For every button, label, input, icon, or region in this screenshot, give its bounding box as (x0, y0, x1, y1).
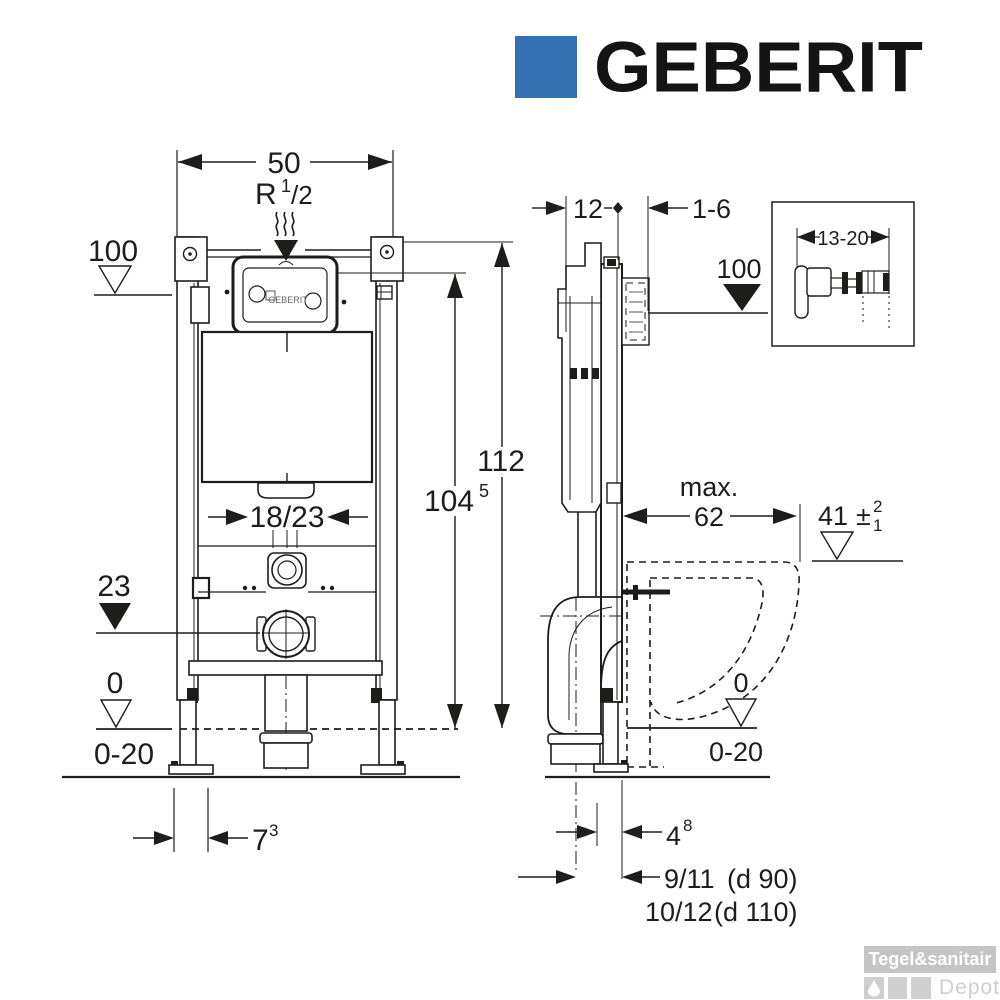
actuator-window: GEBERIT (225, 257, 347, 333)
dim-7-label: 7 (252, 824, 269, 857)
watermark-line1: Tegel&sanitair (869, 949, 992, 970)
dim-max-62: max. 62 (623, 472, 800, 562)
arrow-right-icon (368, 154, 392, 170)
geberit-dimension-sheet: GEBERIT (0, 0, 1000, 1000)
dim-12-label: 12 (573, 194, 603, 224)
cistern-side (558, 243, 601, 597)
range-0-20-label: 0-20 (709, 737, 763, 767)
arrow-right-icon (546, 201, 566, 215)
actuator-protection-box (622, 278, 649, 345)
dim-flush-18-23: 18/23 (208, 501, 368, 548)
supply-thread-sup: 1 (281, 176, 291, 196)
dim-41-tol-plus: 2 (873, 497, 882, 516)
dim-18-23-label: 18/23 (249, 501, 324, 534)
supply-thread-den: /2 (291, 180, 313, 210)
arrow-right-icon (577, 825, 597, 839)
watermark-square (888, 977, 908, 999)
datum-100-label: 100 (716, 254, 761, 284)
arrow-right-icon (556, 870, 576, 884)
datum-0-label: 0 (107, 667, 124, 700)
arrow-left-icon (208, 831, 228, 845)
range-0-20-label: 0-20 (94, 738, 154, 771)
datum-triangle-open-icon (726, 699, 756, 726)
drain-dia-1-label: (d 90) (727, 864, 798, 894)
datum-100-front: 100 (88, 235, 172, 295)
outlet-flange (257, 609, 315, 659)
technical-drawing: GEBERIT (0, 0, 1000, 1000)
window-brand-text: GEBERIT (268, 295, 308, 305)
arrow-left-icon (623, 508, 647, 524)
arrow-down-icon (447, 704, 463, 728)
arrow-left-icon (178, 154, 202, 170)
front-base (169, 661, 405, 774)
dim-104-sup: 5 (479, 481, 489, 501)
arrow-right-icon (226, 509, 248, 525)
watermark-square (911, 977, 931, 999)
dim-13-20-label: 13-20 (817, 228, 868, 250)
watermark-line2: Depot (939, 976, 1000, 1000)
arrow-left-icon (327, 509, 349, 525)
supply-thread-label: R (255, 178, 277, 211)
inset-detail: 13-20 (772, 202, 914, 346)
dim-104-label: 104 (424, 485, 474, 518)
datum-triangle-open-icon (99, 266, 131, 293)
max-label: max. (680, 472, 739, 502)
drain-offset-1-label: 9/11 (664, 864, 715, 894)
front-view: GEBERIT (62, 147, 527, 857)
dim-4-sup: 8 (683, 816, 692, 835)
datum-floor-front: 0 0-20 (94, 667, 154, 771)
dim-drain-connection: 9/11 (d 90) 10/12 (d 110) (518, 864, 798, 927)
arrow-right-icon (154, 831, 174, 845)
datum-0-label: 0 (733, 668, 748, 698)
watermark-bar: Tegel&sanitair (864, 946, 996, 973)
dim-diamond-icon (613, 202, 623, 214)
datum-23-label: 23 (97, 570, 130, 603)
datum-100-side: 100 (648, 254, 768, 313)
dim-112-label: 112 (477, 445, 525, 478)
datum-100-label: 100 (88, 235, 138, 268)
datum-triangle-open-icon (101, 700, 131, 727)
dim-41-label: 41 (818, 501, 848, 531)
steam-icon (276, 212, 294, 236)
water-supply-callout: R 1 /2 (255, 176, 313, 261)
drain-offset-2-label: 10/12 (645, 897, 713, 927)
datum-triangle-filled-icon (99, 603, 131, 630)
arrow-left-icon (622, 825, 642, 839)
dim-41-tol-minus: 1 (873, 516, 882, 535)
dim-4-label: 4 (666, 821, 681, 851)
front-crossmembers (198, 546, 376, 592)
dim-62-label: 62 (694, 502, 724, 532)
arrow-up-icon (494, 243, 510, 267)
dim-bowl-41: 41 ± 2 1 (812, 497, 903, 561)
cistern-front (202, 332, 372, 498)
drain-dia-2-label: (d 110) (714, 897, 798, 927)
dim-wall-1-6: 1-6 (648, 194, 731, 311)
arrow-left-icon (622, 870, 642, 884)
droplet-icon (864, 977, 884, 999)
datum-triangle-open-icon (821, 532, 853, 559)
datum-triangle-filled-icon (723, 284, 761, 311)
side-rail (601, 257, 622, 702)
arrow-down-icon (494, 704, 510, 728)
dim-7-sup: 3 (269, 821, 278, 840)
dim-1-6-label: 1-6 (692, 194, 731, 224)
arrow-left-icon (648, 201, 668, 215)
datum-floor-side: 0 0-20 (709, 668, 763, 767)
dim-leg-7-3: 7 3 (133, 788, 278, 857)
dim-41-pm: ± (856, 501, 871, 531)
arrow-right-icon (773, 508, 797, 524)
tegel-sanitair-watermark: Tegel&sanitair Depot (864, 946, 1000, 1000)
bowl-fixing-rod (622, 585, 670, 600)
watermark-row: Depot (864, 976, 1000, 1000)
arrow-up-icon (447, 274, 463, 298)
